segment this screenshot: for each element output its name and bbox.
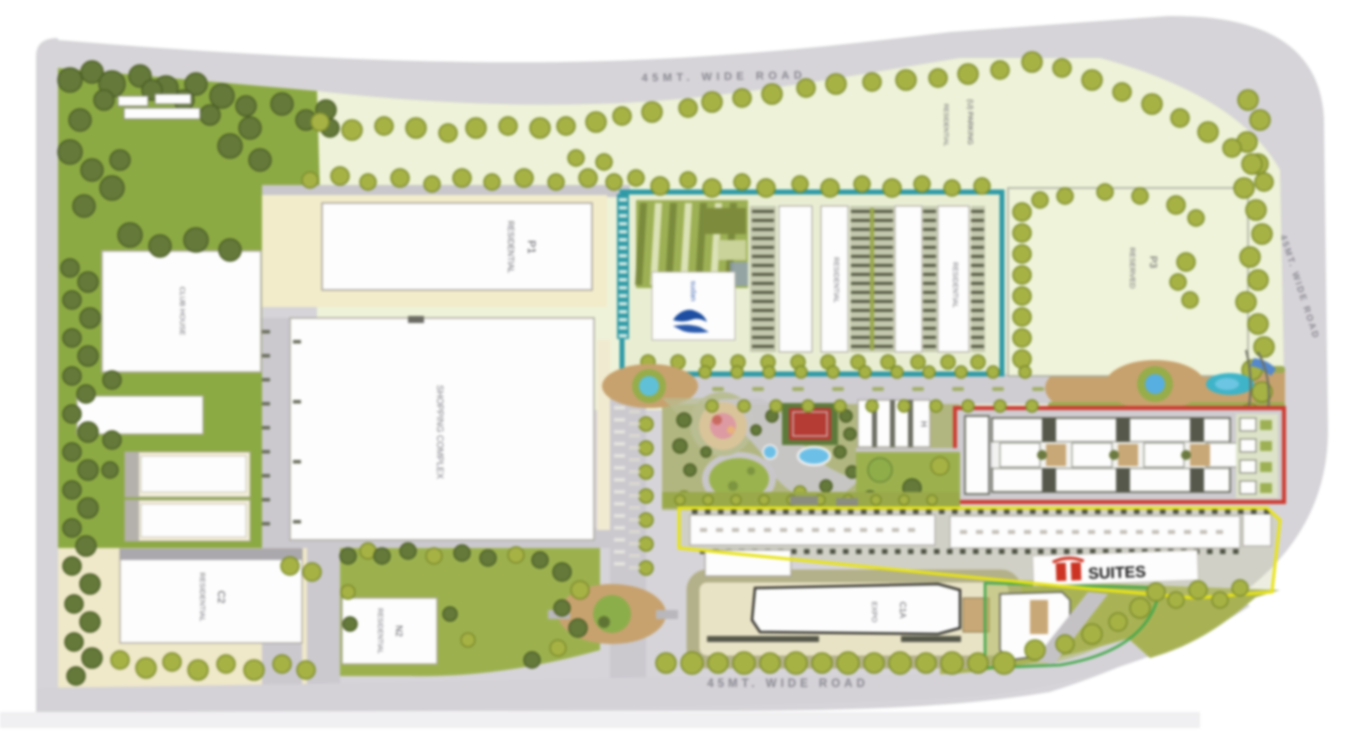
svg-text:RESIDENTIAL: RESIDENTIAL: [942, 104, 949, 147]
svg-text:SHOPPING COMPLEX: SHOPPING COMPLEX: [435, 385, 445, 479]
svg-text:RESIDENTIAL: RESIDENTIAL: [951, 262, 958, 308]
svg-text:RESIDENTIAL: RESIDENTIAL: [198, 572, 207, 621]
svg-text:RESIDENTIAL: RESIDENTIAL: [832, 257, 839, 303]
svg-text:N2: N2: [394, 625, 404, 637]
svg-text:SUITES: SUITES: [1088, 564, 1147, 583]
svg-text:RESIDENTIAL: RESIDENTIAL: [376, 608, 383, 654]
svg-text:CLUB HOUSE: CLUB HOUSE: [178, 287, 187, 336]
svg-text:sudan: sudan: [689, 281, 698, 301]
svg-text:RESERVED: RESERVED: [1128, 247, 1137, 289]
svg-text:C2: C2: [215, 591, 226, 604]
svg-text:45MT. WIDE ROAD: 45MT. WIDE ROAD: [707, 678, 869, 690]
svg-text:C1A: C1A: [898, 602, 908, 619]
svg-text:H: H: [919, 421, 928, 427]
svg-text:(U) PARKING: (U) PARKING: [966, 99, 975, 145]
svg-text:P3: P3: [1147, 256, 1158, 269]
svg-text:P1: P1: [525, 240, 537, 253]
svg-text:RESIDENTIAL: RESIDENTIAL: [506, 221, 515, 274]
svg-text:EXPO: EXPO: [870, 602, 879, 623]
